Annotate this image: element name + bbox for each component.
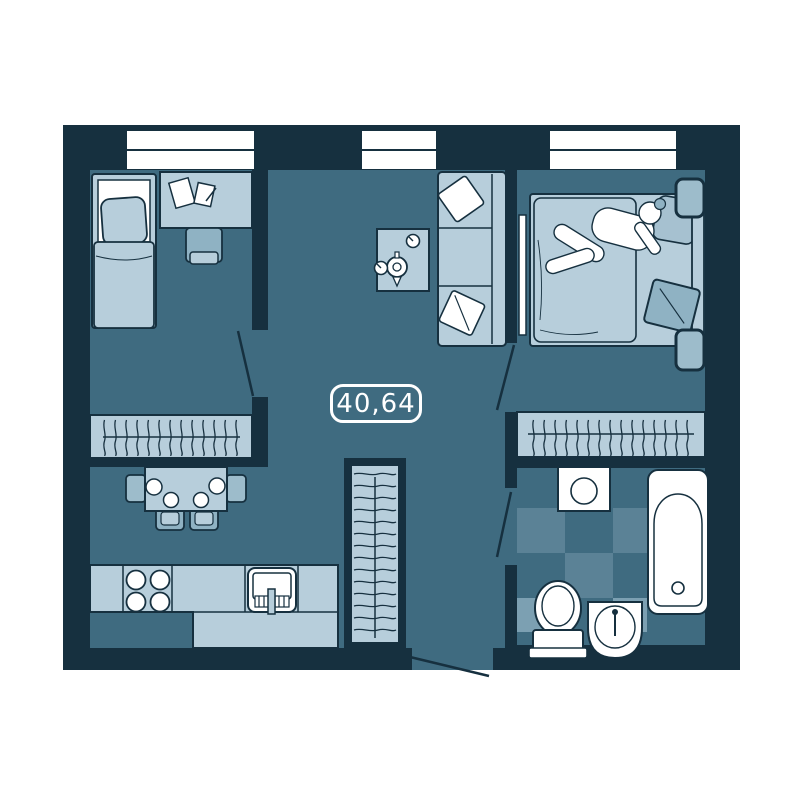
nightstand-top bbox=[676, 179, 704, 217]
desk bbox=[160, 172, 252, 228]
window-left bbox=[127, 131, 254, 169]
area-label: 40,64 bbox=[330, 384, 422, 423]
dining-table bbox=[145, 467, 227, 511]
window-right bbox=[550, 131, 676, 169]
teapot bbox=[387, 257, 407, 277]
bathtub bbox=[648, 470, 708, 614]
tv bbox=[519, 215, 526, 335]
hall-closet bbox=[344, 458, 406, 650]
coffee-table bbox=[375, 229, 430, 291]
bathroom-door-opening bbox=[505, 488, 517, 565]
bathroom-sink bbox=[588, 602, 642, 658]
nightstand-bottom bbox=[676, 330, 704, 370]
desk-chair bbox=[186, 228, 222, 264]
kitchen-sink bbox=[248, 568, 296, 614]
wardrobe-left bbox=[90, 415, 252, 458]
drain bbox=[672, 582, 684, 594]
left-bedroom-door-opening bbox=[252, 330, 268, 397]
washing-machine bbox=[558, 467, 610, 511]
window-center bbox=[362, 131, 436, 169]
floor-plan: 40,64 bbox=[0, 0, 800, 800]
bedroom-wardrobe bbox=[517, 412, 705, 457]
single-bed bbox=[92, 174, 156, 328]
sofa bbox=[437, 172, 506, 346]
